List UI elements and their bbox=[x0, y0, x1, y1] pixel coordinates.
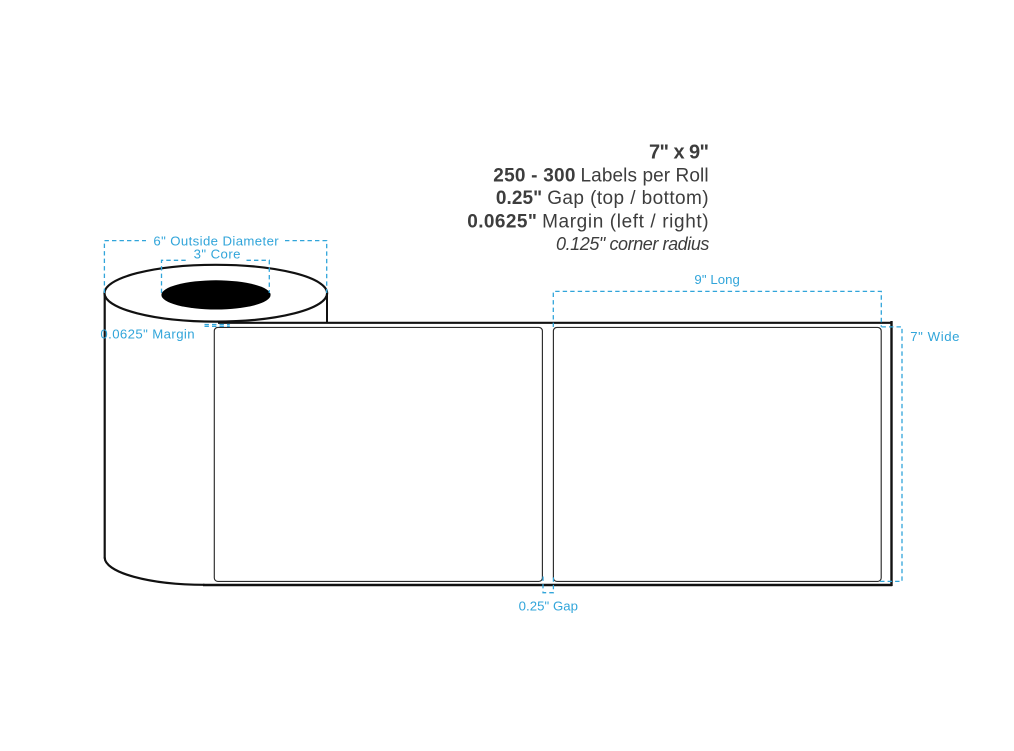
svg-text:Margin (left / right): Margin (left / right) bbox=[542, 212, 709, 233]
svg-text:Gap (top / bottom): Gap (top / bottom) bbox=[547, 188, 708, 209]
svg-text:0.25" Gap: 0.25" Gap bbox=[519, 599, 578, 614]
svg-text:0.0625": 0.0625" bbox=[467, 212, 537, 233]
svg-text:9" Long: 9" Long bbox=[694, 272, 740, 287]
svg-text:0.25": 0.25" bbox=[496, 188, 542, 209]
svg-text:0.0625" Margin: 0.0625" Margin bbox=[100, 326, 194, 341]
svg-text:Labels per Roll: Labels per Roll bbox=[581, 165, 709, 186]
svg-text:7" x 9": 7" x 9" bbox=[649, 141, 709, 163]
svg-text:3" Core: 3" Core bbox=[194, 247, 241, 262]
svg-text:0.125" corner radius: 0.125" corner radius bbox=[556, 234, 709, 254]
svg-text:250 - 300: 250 - 300 bbox=[493, 165, 575, 186]
svg-text:7" Wide: 7" Wide bbox=[910, 329, 959, 344]
